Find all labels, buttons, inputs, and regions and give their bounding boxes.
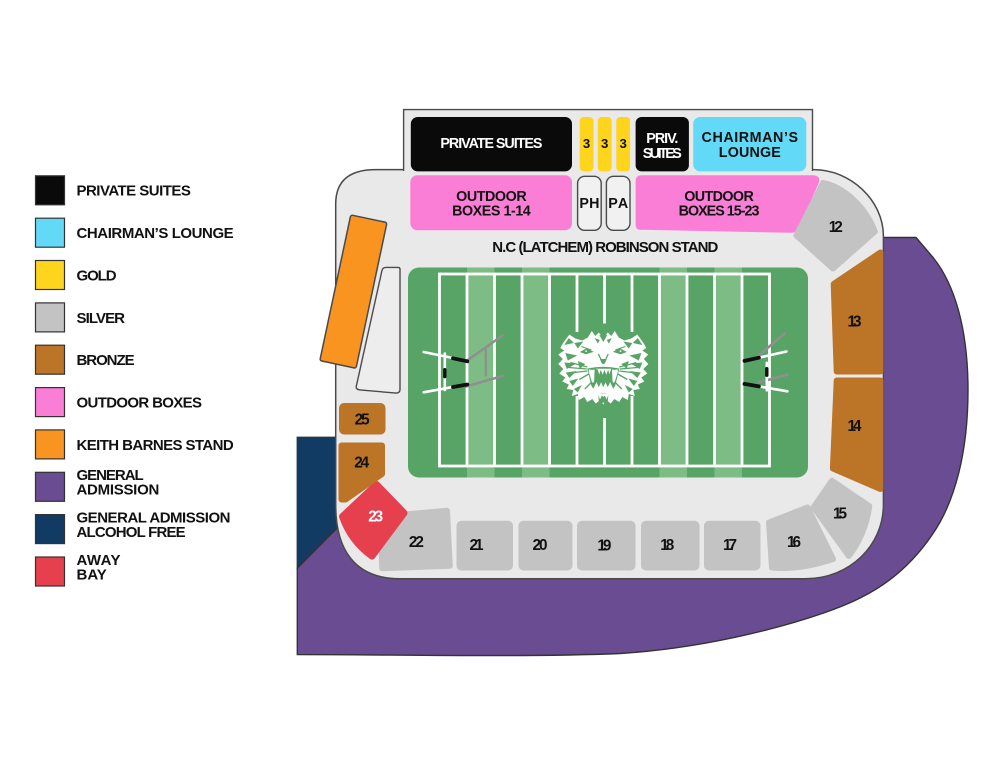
svg-text:19: 19: [597, 537, 611, 554]
svg-text:PRIV.: PRIV.: [646, 131, 678, 147]
svg-text:18: 18: [660, 537, 674, 554]
svg-text:BRONZE: BRONZE: [77, 352, 135, 369]
svg-text:12: 12: [829, 219, 843, 236]
svg-text:CHAIRMAN’S LOUNGE: CHAIRMAN’S LOUNGE: [77, 225, 234, 242]
svg-text:ALCOHOL FREE: ALCOHOL FREE: [77, 524, 186, 541]
svg-text:25: 25: [355, 412, 370, 429]
svg-text:ADMISSION: ADMISSION: [77, 482, 160, 499]
svg-text:15: 15: [833, 505, 847, 522]
svg-text:BOXES 15-23: BOXES 15-23: [679, 203, 760, 219]
svg-text:20: 20: [533, 537, 548, 554]
svg-text:KEITH BARNES STAND: KEITH BARNES STAND: [77, 437, 234, 454]
svg-text:3: 3: [620, 136, 627, 151]
svg-text:3: 3: [601, 136, 608, 151]
svg-text:3: 3: [583, 136, 590, 151]
svg-text:22: 22: [409, 534, 424, 551]
svg-text:CHAIRMAN’S: CHAIRMAN’S: [702, 130, 799, 146]
svg-text:17: 17: [723, 537, 737, 554]
svg-text:GOLD: GOLD: [77, 267, 117, 284]
svg-text:14: 14: [848, 418, 862, 435]
svg-text:21: 21: [470, 537, 484, 554]
svg-text:BOXES 1-14: BOXES 1-14: [452, 203, 531, 219]
svg-text:SUITES: SUITES: [643, 146, 682, 162]
svg-text:N.C (LATCHEM) ROBINSON STAND: N.C (LATCHEM) ROBINSON STAND: [492, 239, 718, 256]
svg-text:OUTDOOR BOXES: OUTDOOR BOXES: [77, 395, 203, 412]
svg-text:PA: PA: [608, 196, 628, 212]
svg-text:LOUNGE: LOUNGE: [719, 145, 781, 161]
svg-text:23: 23: [368, 509, 383, 526]
svg-text:24: 24: [354, 455, 369, 472]
svg-text:SILVER: SILVER: [77, 310, 126, 327]
svg-text:PH: PH: [579, 196, 599, 212]
svg-text:PRIVATE SUITES: PRIVATE SUITES: [77, 183, 191, 200]
svg-text:BAY: BAY: [77, 566, 107, 583]
svg-text:13: 13: [848, 313, 862, 330]
svg-text:16: 16: [787, 534, 801, 551]
svg-text:PRIVATE SUITES: PRIVATE SUITES: [440, 136, 542, 152]
